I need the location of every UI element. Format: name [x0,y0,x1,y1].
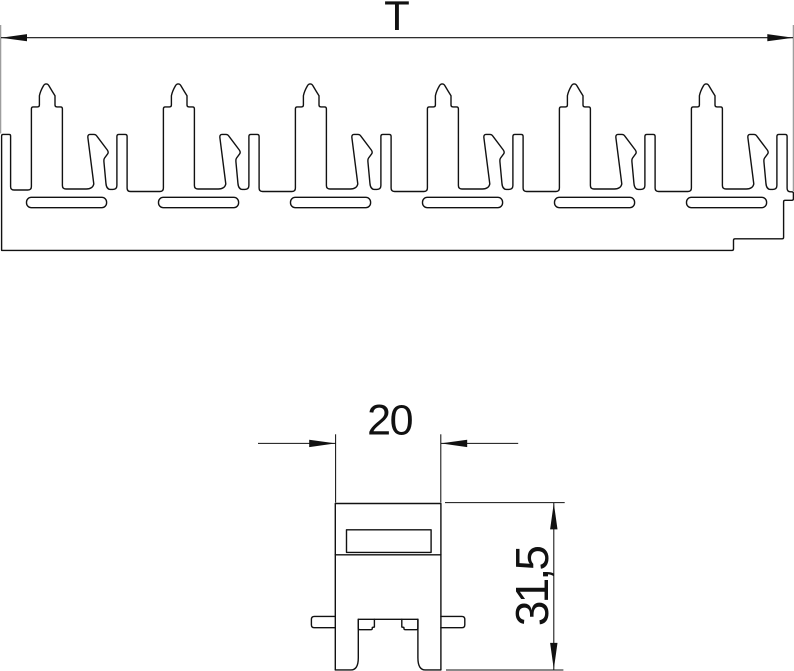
svg-text:T: T [384,0,410,39]
svg-text:31,5: 31,5 [506,547,558,627]
svg-text:20: 20 [367,397,412,445]
